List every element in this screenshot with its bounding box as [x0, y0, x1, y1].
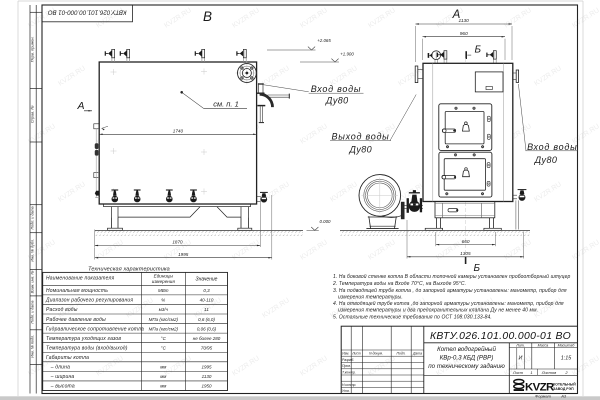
svg-text:Диапазон рабочего регулировани: Диапазон рабочего регулирования: [45, 298, 133, 304]
svg-text:измерения температуры и два пр: измерения температуры и два предохраните…: [338, 308, 538, 314]
svg-text:Выход воды: Выход воды: [331, 132, 389, 142]
svg-text:Масштаб: Масштаб: [558, 344, 576, 348]
svg-text:Утв.: Утв.: [342, 389, 350, 393]
svg-text:°С: °С: [161, 336, 167, 341]
svg-text:Справ. №: Справ. №: [30, 105, 35, 123]
svg-text:КВТУ.026.101.00.000-01 ВО: КВТУ.026.101.00.000-01 ВО: [430, 331, 571, 342]
svg-text:Ду80: Ду80: [349, 144, 373, 154]
svg-text:Перв. примен.: Перв. примен.: [30, 36, 35, 62]
svg-text:Инв. № дубл.: Инв. № дубл.: [31, 239, 35, 262]
svg-text:Температура воды (вход/выход): Температура воды (вход/выход): [46, 345, 128, 351]
svg-text:В: В: [203, 9, 212, 24]
svg-text:– длина: – длина: [46, 365, 70, 371]
svg-text:Подп. и дата: Подп. и дата: [31, 206, 35, 229]
svg-text:– высота: – высота: [46, 384, 75, 390]
svg-text:мм: мм: [160, 365, 166, 370]
svg-text:измерения: измерения: [152, 279, 176, 284]
svg-text:Масса: Масса: [538, 344, 549, 348]
svg-text:Т.контр.: Т.контр.: [342, 370, 356, 374]
svg-text:ЗАВОД РЭП: ЗАВОД РЭП: [553, 387, 574, 391]
svg-text:Лист: Лист: [512, 370, 524, 375]
svg-text:3. На подводящей трубе котла: 3. На подводящей трубе котла , до запорн…: [333, 287, 567, 294]
svg-text:0,06 (0,6): 0,06 (0,6): [197, 326, 217, 331]
svg-text:0,3: 0,3: [203, 288, 210, 293]
svg-text:Габариты котла: Габариты котла: [46, 355, 89, 361]
svg-text:КВТУ.026.101.00.000-01 ВО: КВТУ.026.101.00.000-01 ВО: [48, 9, 127, 16]
svg-text:Ду80: Ду80: [534, 155, 558, 165]
svg-text:МПа (кгс/см2): МПа (кгс/см2): [149, 326, 179, 331]
svg-text:Дата: Дата: [412, 352, 422, 356]
svg-text:см. п. 1: см. п. 1: [213, 100, 239, 109]
svg-text:1740: 1740: [173, 129, 184, 134]
svg-text:Б: Б: [475, 45, 482, 56]
svg-text:Инв. № подл.: Инв. № подл.: [31, 335, 35, 358]
svg-text:Вход воды: Вход воды: [311, 84, 361, 94]
svg-text:измерения температуры.: измерения температуры.: [338, 294, 403, 300]
svg-text:960: 960: [460, 31, 468, 37]
svg-text:Разраб.: Разраб.: [342, 358, 354, 362]
svg-text:Температура уходящих газов: Температура уходящих газов: [46, 336, 121, 342]
svg-text:Листов: Листов: [541, 370, 557, 375]
svg-text:Котел водогрейный: Котел водогрейный: [437, 346, 496, 353]
svg-text:Рабочее давление воды: Рабочее давление воды: [46, 317, 106, 323]
svg-text:40-110: 40-110: [200, 298, 214, 303]
svg-text:Формат: Формат: [535, 394, 552, 399]
svg-text:м3/ч: м3/ч: [159, 307, 169, 312]
svg-text:1995: 1995: [201, 365, 212, 370]
svg-text:Взам. инв. №: Взам. инв. №: [31, 271, 35, 294]
svg-text:Вход воды: Вход воды: [527, 142, 577, 152]
svg-text:1:15: 1:15: [561, 356, 572, 362]
svg-text:KVZR: KVZR: [525, 382, 554, 394]
svg-text:Ду80: Ду80: [325, 96, 349, 106]
svg-text:Пров.: Пров.: [342, 364, 351, 368]
svg-text:N докум.: N докум.: [369, 352, 383, 356]
svg-text:1130: 1130: [202, 374, 212, 379]
svg-text:1950: 1950: [201, 384, 212, 389]
svg-text:4. На отводящей трубе котла ,: 4. На отводящей трубе котла ,до запорной…: [333, 300, 564, 307]
svg-text:МПа (кгс/см2): МПа (кгс/см2): [149, 317, 179, 322]
svg-text:+2.065: +2.065: [317, 38, 331, 43]
svg-text:мм: мм: [160, 374, 166, 379]
svg-text:Расход воды: Расход воды: [46, 307, 78, 313]
svg-text:1870: 1870: [172, 240, 183, 245]
svg-text:А3: А3: [560, 394, 567, 399]
svg-text:по техническому заданию: по техническому заданию: [428, 363, 505, 370]
svg-text:мм: мм: [160, 384, 166, 389]
svg-text:КОТЕЛЬНЫЙ: КОТЕЛЬНЫЙ: [553, 382, 576, 386]
svg-text:Подп. и дата: Подп. и дата: [31, 301, 35, 324]
svg-text:Значение: Значение: [196, 277, 218, 283]
svg-text:Подп.: Подп.: [396, 352, 405, 356]
svg-text:И: И: [518, 356, 522, 362]
svg-text:Лист: Лист: [351, 352, 361, 356]
svg-text:Единицы: Единицы: [154, 274, 174, 279]
svg-text:МВт: МВт: [158, 288, 169, 293]
svg-text:Н.контр.: Н.контр.: [342, 383, 356, 387]
svg-text:°С: °С: [161, 345, 167, 350]
svg-text:Наименование показателя: Наименование показателя: [46, 276, 115, 282]
svg-text:Б: Б: [474, 263, 481, 274]
svg-text:1: 1: [530, 370, 532, 375]
svg-text:2. Температура воды на Входе: 2. Температура воды на Входе 70°С, на Вы…: [332, 281, 466, 287]
svg-text:Номинальная мощность: Номинальная мощность: [46, 288, 108, 294]
svg-text:Лит.: Лит.: [515, 344, 524, 348]
svg-text:%: %: [161, 298, 165, 303]
svg-text:5. Остальные технические треб: 5. Остальные технические требования по О…: [333, 315, 492, 321]
svg-text:Техническая характеристика: Техническая характеристика: [88, 266, 170, 272]
svg-text:0.000: 0.000: [320, 219, 332, 224]
svg-text:1. На боковой стенке котла В: 1. На боковой стенке котла В области топ…: [333, 273, 571, 280]
svg-text:70/95: 70/95: [201, 345, 213, 350]
svg-text:Гидравлическое сопротивление к: Гидравлическое сопротивление котла: [46, 326, 144, 332]
svg-text:0,6 (6,0): 0,6 (6,0): [198, 317, 215, 322]
svg-text:Изм.: Изм.: [342, 352, 349, 356]
svg-text:1995: 1995: [178, 252, 189, 257]
svg-text:не более 280: не более 280: [193, 336, 221, 341]
svg-text:1130: 1130: [459, 18, 470, 24]
svg-text:А: А: [76, 100, 84, 112]
svg-text:660: 660: [462, 239, 470, 244]
svg-text:+1.900: +1.900: [340, 52, 354, 57]
svg-text:11: 11: [204, 307, 209, 312]
svg-text:КВр-0,3 КБД (РВР): КВр-0,3 КБД (РВР): [440, 354, 494, 361]
svg-text:1305: 1305: [460, 251, 471, 256]
svg-text:– ширина: – ширина: [46, 374, 74, 380]
